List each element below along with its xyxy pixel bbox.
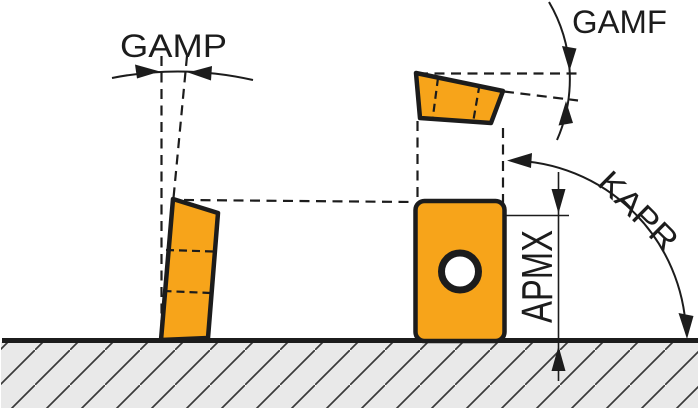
gamp-arc-left-arrowhead <box>135 65 160 79</box>
hatched-ground-area <box>1 342 698 408</box>
gamp-angle-arc <box>112 71 253 80</box>
insert-side-view <box>161 199 218 340</box>
insert-geometry-diagram: GAMP GAMF APMX KAPR <box>0 0 700 410</box>
kapr-arc-bottom-arrowhead <box>679 313 694 339</box>
apmx-top-arrowhead <box>552 189 566 214</box>
gamp-arc-right-arrowhead <box>188 66 212 81</box>
gamf-group: GAMF <box>416 2 667 203</box>
insert-top-view <box>416 73 503 123</box>
gamp-group: GAMP <box>112 28 253 340</box>
gamf-arc-lower-arrowhead <box>559 101 574 126</box>
gamf-label: GAMF <box>572 4 667 40</box>
gamf-inclined-face-dashed-line <box>504 92 578 101</box>
kapr-arc-left-arrowhead <box>507 153 532 168</box>
gamf-arc-upper-arrowhead <box>562 46 577 71</box>
gamp-tilted-axis-dashed-line <box>174 56 188 198</box>
apmx-label: APMX <box>513 230 562 323</box>
tip-height-connector-dashed-line <box>184 200 414 202</box>
diagram-canvas: GAMP GAMF APMX KAPR <box>0 0 700 410</box>
kapr-label: KAPR <box>591 163 686 258</box>
workpiece-ground <box>1 341 698 409</box>
insert-fixing-hole <box>442 253 479 290</box>
gamp-label: GAMP <box>120 28 227 64</box>
